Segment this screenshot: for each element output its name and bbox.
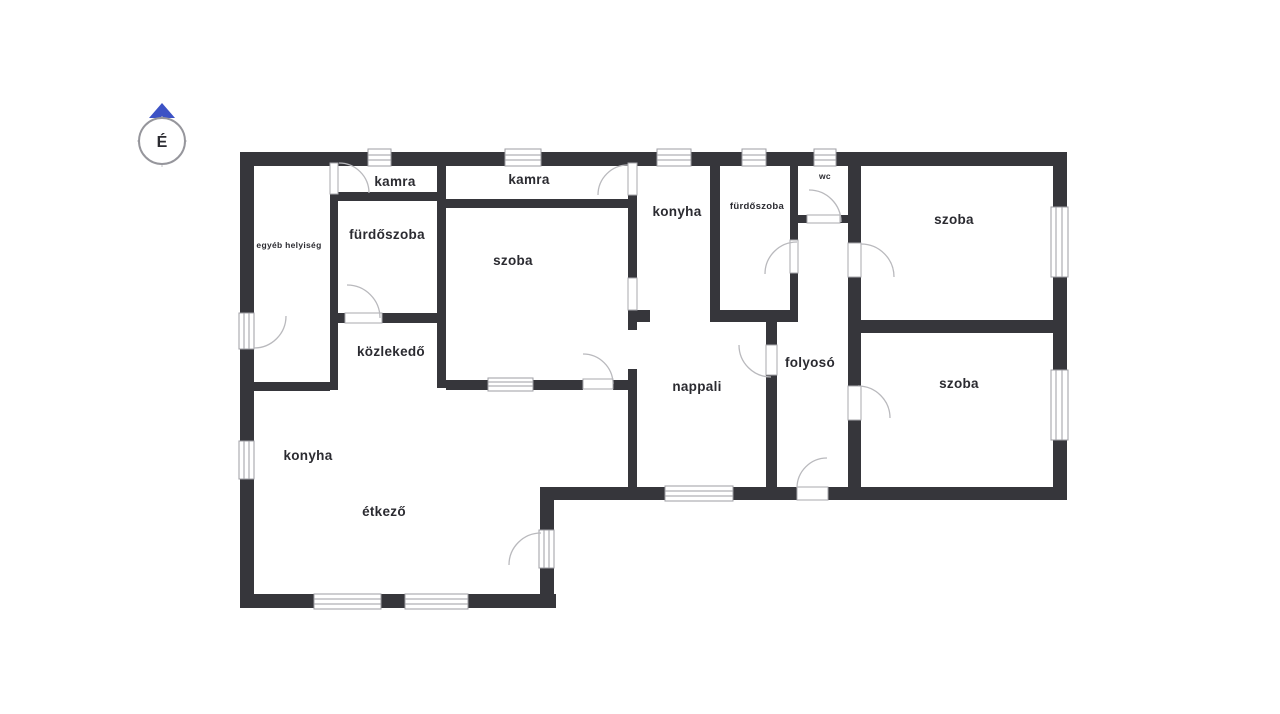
window xyxy=(657,149,691,166)
wall-segment xyxy=(766,375,777,487)
room-label-szoba-kozepso: szoba xyxy=(493,253,533,268)
wall-segment xyxy=(790,273,798,313)
room-labels: egyéb helyiség kamra kamra fürdőszoba sz… xyxy=(256,171,979,519)
door-leaf xyxy=(790,240,798,273)
window xyxy=(814,149,836,166)
wall-segment xyxy=(710,162,720,322)
room-label-furdoszoba-1: fürdőszoba xyxy=(349,227,425,242)
window xyxy=(1051,370,1068,440)
room-label-konyha-also: konyha xyxy=(283,448,332,463)
door-swing-arc xyxy=(509,533,541,565)
wall-segment xyxy=(240,152,254,608)
wall-segment xyxy=(240,152,1067,166)
wall-segment xyxy=(446,380,488,390)
floorplan-svg: É xyxy=(0,0,1280,714)
wall-segment xyxy=(330,194,338,390)
window xyxy=(405,594,468,609)
entry-door-leaf xyxy=(239,313,254,349)
room-label-kamra-1: kamra xyxy=(374,174,415,189)
wall-segment xyxy=(710,310,798,322)
wall-segment xyxy=(848,162,861,243)
window xyxy=(488,378,533,391)
wall-segment xyxy=(766,313,777,345)
floorplan-canvas: É xyxy=(0,0,1280,714)
window xyxy=(505,149,541,166)
door-swing-arc xyxy=(797,458,827,488)
wall-segment xyxy=(446,199,628,208)
room-label-konyha-felso: konyha xyxy=(652,204,701,219)
door-swing-arc xyxy=(858,386,890,418)
compass: É xyxy=(137,103,187,167)
wall-segment xyxy=(790,162,798,240)
wall-segment xyxy=(628,195,637,278)
wall-segment xyxy=(798,215,807,223)
wall-segment xyxy=(848,420,861,487)
wall-segment xyxy=(861,320,1053,333)
door-leaf xyxy=(628,163,637,195)
window xyxy=(239,441,254,479)
wall-segment xyxy=(338,313,345,323)
wall-segment xyxy=(848,277,861,386)
door-leaf xyxy=(807,215,840,223)
room-label-kamra-2: kamra xyxy=(508,172,549,187)
room-label-egyeb-helyiseg: egyéb helyiség xyxy=(256,240,321,250)
wall-segment xyxy=(1053,152,1067,500)
door-leaf xyxy=(330,163,338,194)
door-swing-arc xyxy=(254,316,286,348)
north-arrow-icon xyxy=(149,103,175,118)
room-label-szoba-jobb-also: szoba xyxy=(939,376,979,391)
window xyxy=(665,486,733,501)
window xyxy=(1051,207,1068,277)
room-label-etkezo: étkező xyxy=(362,504,406,519)
door-swing-arc xyxy=(339,163,369,193)
wall-segment xyxy=(533,380,583,390)
door-leaf xyxy=(766,345,777,375)
wall-segment xyxy=(240,594,556,608)
wall-segment xyxy=(332,192,446,201)
door-leaf xyxy=(797,487,828,500)
door-swing-arc xyxy=(598,165,628,195)
wall-segment xyxy=(253,382,330,391)
compass-north-letter: É xyxy=(157,132,168,151)
door-leaf xyxy=(345,313,382,323)
terrace-door-leaf xyxy=(539,530,554,568)
wall-segment xyxy=(628,369,637,487)
door-leaf xyxy=(628,278,637,310)
door-leaf xyxy=(583,379,613,389)
wall-segment xyxy=(628,310,650,322)
door-leaves xyxy=(330,163,861,500)
wall-segment xyxy=(382,313,437,323)
window xyxy=(742,149,766,166)
door-leaf xyxy=(848,243,861,277)
room-label-wc: wc xyxy=(818,171,831,181)
wall-segment xyxy=(437,162,446,388)
door-leaf xyxy=(848,386,861,420)
room-label-furdoszoba-2: fürdőszoba xyxy=(730,201,785,212)
door-swing-arc xyxy=(861,244,894,277)
room-label-kozlekedo: közlekedő xyxy=(357,344,425,359)
window xyxy=(368,149,391,166)
room-label-folyoso: folyosó xyxy=(785,355,835,370)
window xyxy=(314,594,381,609)
room-label-nappali: nappali xyxy=(672,379,721,394)
room-label-szoba-jobb-felso: szoba xyxy=(934,212,974,227)
